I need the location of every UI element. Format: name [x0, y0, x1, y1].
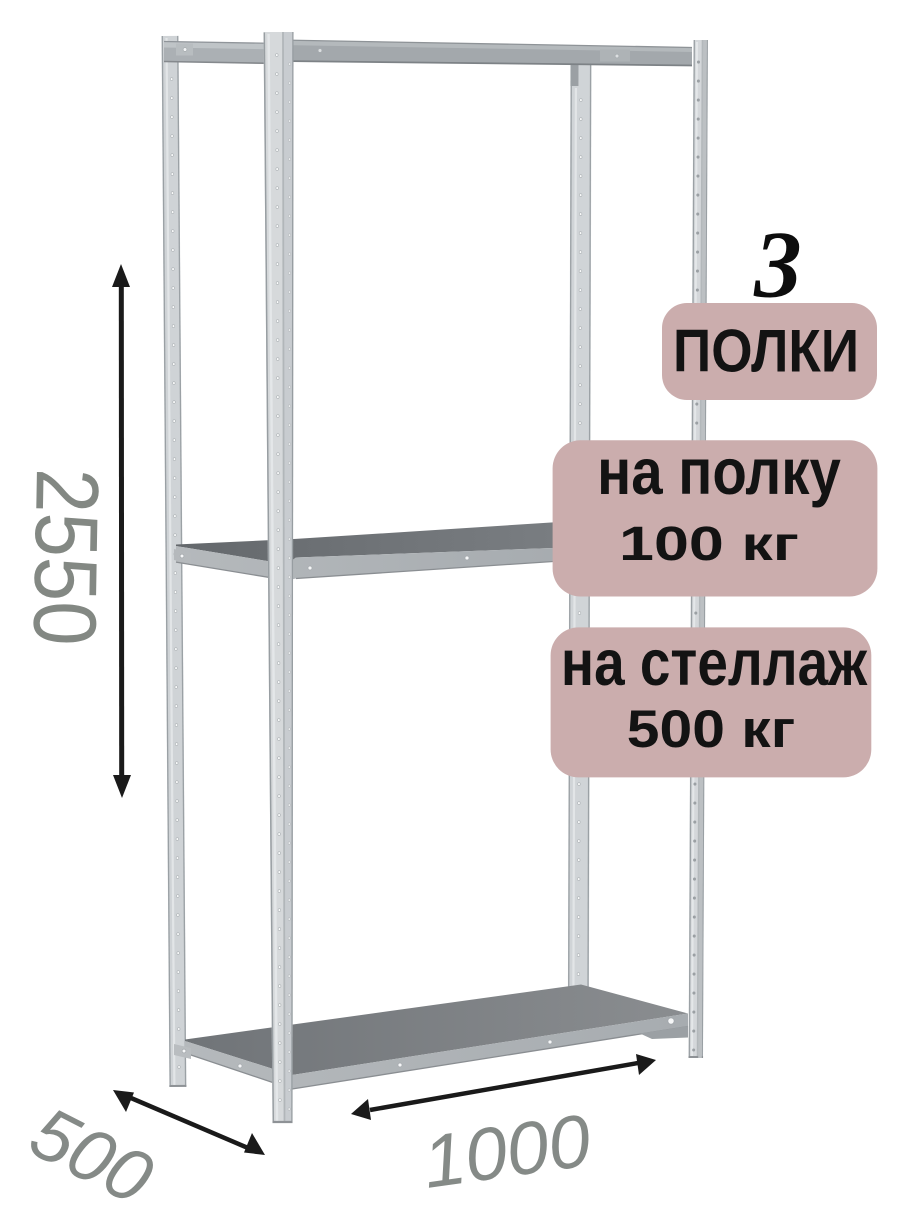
svg-text:на полку: на полку — [597, 435, 841, 508]
svg-text:3: 3 — [753, 212, 802, 318]
svg-text:2550: 2550 — [15, 468, 118, 647]
svg-text:500 кг: 500 кг — [627, 699, 795, 759]
svg-text:100 кг: 100 кг — [619, 516, 799, 570]
svg-text:на стеллаж: на стеллаж — [561, 627, 868, 699]
svg-text:ПОЛКИ: ПОЛКИ — [673, 319, 859, 386]
